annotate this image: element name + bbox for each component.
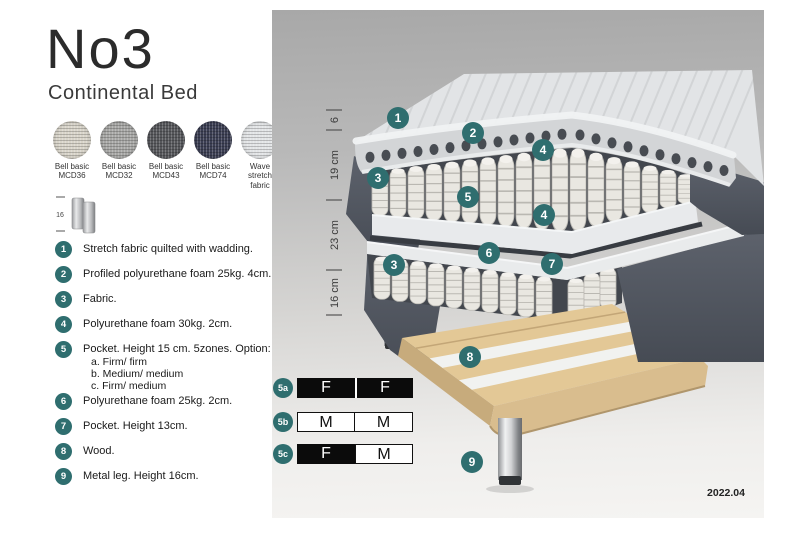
diagram-panel: 6 19 cm 23 cm 16 cm 1 2 4 3 5 4 6 3 7 8 … <box>272 10 764 518</box>
firmness-cell: M <box>355 412 413 432</box>
legend-badge-8: 8 <box>55 443 72 460</box>
svg-text:4: 4 <box>540 143 547 157</box>
swatch-name: Wave <box>250 162 270 171</box>
callout-7: 7 <box>541 253 563 275</box>
swatch-code: MCD32 <box>105 171 132 180</box>
callout-5: 5 <box>457 186 479 208</box>
callout-6: 6 <box>478 242 500 264</box>
swatch-name: Bell basic <box>196 162 230 171</box>
legend-item-6: 6Polyurethane foam 25kg. 2cm. <box>55 393 293 411</box>
svg-text:3: 3 <box>375 171 382 185</box>
legend-text-9: Metal leg. Height 16cm. <box>83 468 293 485</box>
legend-option-c: c. Firm/ medium <box>91 380 166 392</box>
firmness-badge-5b: 5b <box>273 412 293 432</box>
legend-text-8: Wood. <box>83 443 293 460</box>
svg-text:6: 6 <box>486 246 493 260</box>
legend-text-1: Stretch fabric quilted with wadding. <box>83 241 293 258</box>
legend-text-3: Fabric. <box>83 291 293 308</box>
legend-text-2: Profiled polyurethane foam 25kg. 4cm. <box>83 266 293 283</box>
legend-item-9: 9Metal leg. Height 16cm. <box>55 468 293 486</box>
swatch-code: stretch fabric <box>248 171 272 189</box>
swatch-name: Bell basic <box>149 162 183 171</box>
swatch-name: Bell basic <box>102 162 136 171</box>
callout-9: 9 <box>461 451 483 473</box>
fabric-circle-icon <box>53 121 91 159</box>
callout-4b: 4 <box>533 204 555 226</box>
fabric-circle-icon <box>147 121 185 159</box>
legend-item-7: 7Pocket. Height 13cm. <box>55 418 293 436</box>
dimension-ruler: 6 19 cm 23 cm 16 cm <box>326 110 342 315</box>
firmness-cell: M <box>297 412 355 432</box>
legend-option-b: b. Medium/ medium <box>91 368 183 380</box>
firmness-cell: F <box>297 378 355 398</box>
fabric-swatches: Bell basicMCD36 Bell basicMCD32 Bell bas… <box>50 121 282 190</box>
legend-option-a: a. Firm/ firm <box>91 356 147 368</box>
legend-badge-2: 2 <box>55 266 72 283</box>
svg-text:4: 4 <box>541 208 548 222</box>
firmness-badge-5a: 5a <box>273 378 293 398</box>
legend-item-3: 3Fabric. <box>55 291 293 309</box>
callout-2: 2 <box>462 122 484 144</box>
legend-item-1: 1Stretch fabric quilted with wadding. <box>55 241 293 259</box>
swatch-mcd36: Bell basicMCD36 <box>50 121 94 190</box>
legend-badge-9: 9 <box>55 468 72 485</box>
svg-text:7: 7 <box>549 257 556 271</box>
svg-text:9: 9 <box>469 455 476 469</box>
legend-badge-4: 4 <box>55 316 72 333</box>
legend-text-4: Polyurethane foam 30kg. 2cm. <box>83 316 293 333</box>
legend-text-7: Pocket. Height 13cm. <box>83 418 293 435</box>
fabric-circle-icon <box>194 121 232 159</box>
leg-thumb-icon <box>72 198 84 229</box>
legend-badge-3: 3 <box>55 291 72 308</box>
callout-3b: 3 <box>383 254 405 276</box>
svg-text:2: 2 <box>470 126 477 140</box>
dim-label-middle: 23 cm <box>329 220 341 250</box>
page-subtitle: Continental Bed <box>48 82 198 105</box>
legend-item-2: 2Profiled polyurethane foam 25kg. 4cm. <box>55 266 293 284</box>
leg-height-label: 16 <box>56 212 64 219</box>
legend-badge-5: 5 <box>55 341 72 358</box>
legend-badge-7: 7 <box>55 418 72 435</box>
svg-text:5: 5 <box>465 190 472 204</box>
swatch-code: MCD43 <box>152 171 179 180</box>
swatch-code: MCD74 <box>199 171 226 180</box>
firmness-cell: F <box>355 378 413 398</box>
legend-badge-6: 6 <box>55 393 72 410</box>
legend-item-8: 8Wood. <box>55 443 293 461</box>
swatch-mcd43: Bell basicMCD43 <box>144 121 188 190</box>
firmness-table: 5a F F 5b M M 5c F M <box>272 376 432 496</box>
swatch-mcd32: Bell basicMCD32 <box>97 121 141 190</box>
callout-4a: 4 <box>532 139 554 161</box>
leg-thumb-icon <box>83 202 95 233</box>
dim-label-mattress: 19 cm <box>329 150 341 180</box>
firmness-cell: F <box>297 444 355 464</box>
page-title: No3 <box>46 16 155 81</box>
fabric-circle-icon <box>100 121 138 159</box>
spec-sheet: No3 Continental Bed Bell basicMCD36 Bell… <box>0 0 800 533</box>
swatch-name: Bell basic <box>55 162 89 171</box>
dim-label-topper: 6 <box>329 117 341 123</box>
legend-list: 1Stretch fabric quilted with wadding. 2P… <box>55 241 293 496</box>
callout-8: 8 <box>459 346 481 368</box>
legend-badge-1: 1 <box>55 241 72 258</box>
firmness-badge-5c: 5c <box>273 444 293 464</box>
swatch-code: MCD36 <box>58 171 85 180</box>
svg-text:8: 8 <box>467 350 474 364</box>
callout-1: 1 <box>387 107 409 129</box>
svg-text:3: 3 <box>391 258 398 272</box>
firmness-cell: M <box>355 444 413 464</box>
swatch-mcd74: Bell basicMCD74 <box>191 121 235 190</box>
legend-text-6: Polyurethane foam 25kg. 2cm. <box>83 393 293 410</box>
leg-height-icon: 16 <box>52 190 110 236</box>
version-label: 2022.04 <box>707 487 745 499</box>
svg-text:1: 1 <box>395 111 402 125</box>
dim-label-leg: 16 cm <box>329 278 341 308</box>
callout-3a: 3 <box>367 167 389 189</box>
legend-item-4: 4Polyurethane foam 30kg. 2cm. <box>55 316 293 334</box>
